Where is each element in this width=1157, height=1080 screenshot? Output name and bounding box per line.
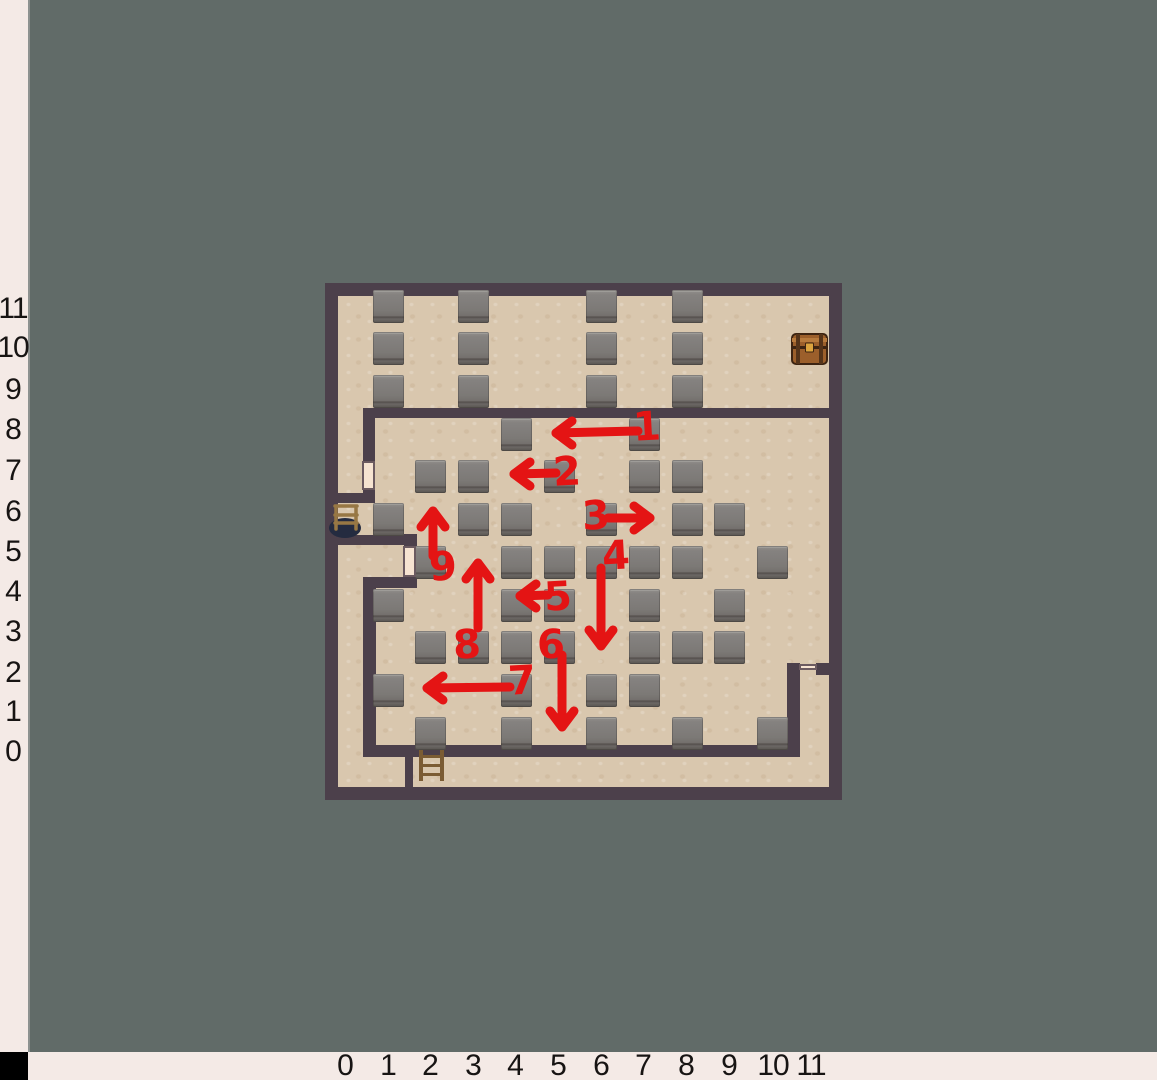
- treasure-chest-icon: [791, 332, 828, 366]
- screenshot-root: 11109876543210 01234567891011 123456789: [0, 0, 1157, 1080]
- stone-block: [458, 332, 489, 365]
- chair-icon: [328, 503, 364, 539]
- inner-wall: [787, 663, 800, 757]
- stone-block: [415, 631, 446, 664]
- stone-block: [373, 589, 404, 622]
- inner-wall: [363, 408, 375, 465]
- stone-block: [672, 631, 703, 664]
- stone-block: [501, 503, 532, 536]
- stone-block: [714, 631, 745, 664]
- stone-block: [586, 717, 617, 750]
- stone-block: [544, 589, 575, 622]
- stone-block: [373, 674, 404, 707]
- door-left-upper[interactable]: [362, 461, 375, 490]
- stone-block: [458, 375, 489, 408]
- stone-block: [373, 290, 404, 323]
- inner-wall: [816, 663, 829, 675]
- ladder[interactable]: [417, 750, 446, 781]
- stone-block: [672, 717, 703, 750]
- stone-block: [757, 717, 788, 750]
- stone-block: [501, 717, 532, 750]
- stone-block: [629, 418, 660, 451]
- stone-block: [544, 546, 575, 579]
- treasure-chest[interactable]: [791, 332, 828, 366]
- stone-block: [714, 589, 745, 622]
- stone-block: [629, 589, 660, 622]
- inner-wall: [338, 493, 375, 503]
- stone-block: [458, 631, 489, 664]
- stone-block: [672, 375, 703, 408]
- stone-block: [373, 503, 404, 536]
- stone-block: [586, 290, 617, 323]
- door-notch[interactable]: [799, 664, 817, 670]
- stone-block: [586, 503, 617, 536]
- chair[interactable]: [328, 503, 364, 539]
- stone-block: [373, 332, 404, 365]
- stone-block: [373, 375, 404, 408]
- stone-block: [629, 631, 660, 664]
- stone-block: [629, 546, 660, 579]
- door-left-lower[interactable]: [403, 546, 416, 577]
- stone-block: [501, 546, 532, 579]
- stone-block: [629, 674, 660, 707]
- stone-block: [415, 460, 446, 493]
- stone-block: [672, 290, 703, 323]
- stone-block: [586, 332, 617, 365]
- stone-block: [501, 631, 532, 664]
- stone-block: [501, 674, 532, 707]
- stone-block: [458, 460, 489, 493]
- stone-block: [501, 589, 532, 622]
- stone-block: [544, 460, 575, 493]
- stone-block: [672, 503, 703, 536]
- stone-block: [586, 674, 617, 707]
- ladder-icon: [417, 750, 446, 781]
- stone-block: [415, 546, 446, 579]
- map-scene: 123456789: [0, 0, 1157, 1080]
- stone-block: [458, 503, 489, 536]
- stone-block: [501, 418, 532, 451]
- stone-block: [458, 290, 489, 323]
- stone-block: [629, 460, 660, 493]
- stone-block: [714, 503, 745, 536]
- inner-wall: [363, 408, 829, 418]
- stone-block: [757, 546, 788, 579]
- stone-block: [672, 460, 703, 493]
- stone-block: [586, 375, 617, 408]
- stone-block: [544, 631, 575, 664]
- stone-block: [586, 546, 617, 579]
- stone-block: [415, 717, 446, 750]
- stone-block: [672, 332, 703, 365]
- inner-wall: [405, 757, 413, 789]
- stone-block: [672, 546, 703, 579]
